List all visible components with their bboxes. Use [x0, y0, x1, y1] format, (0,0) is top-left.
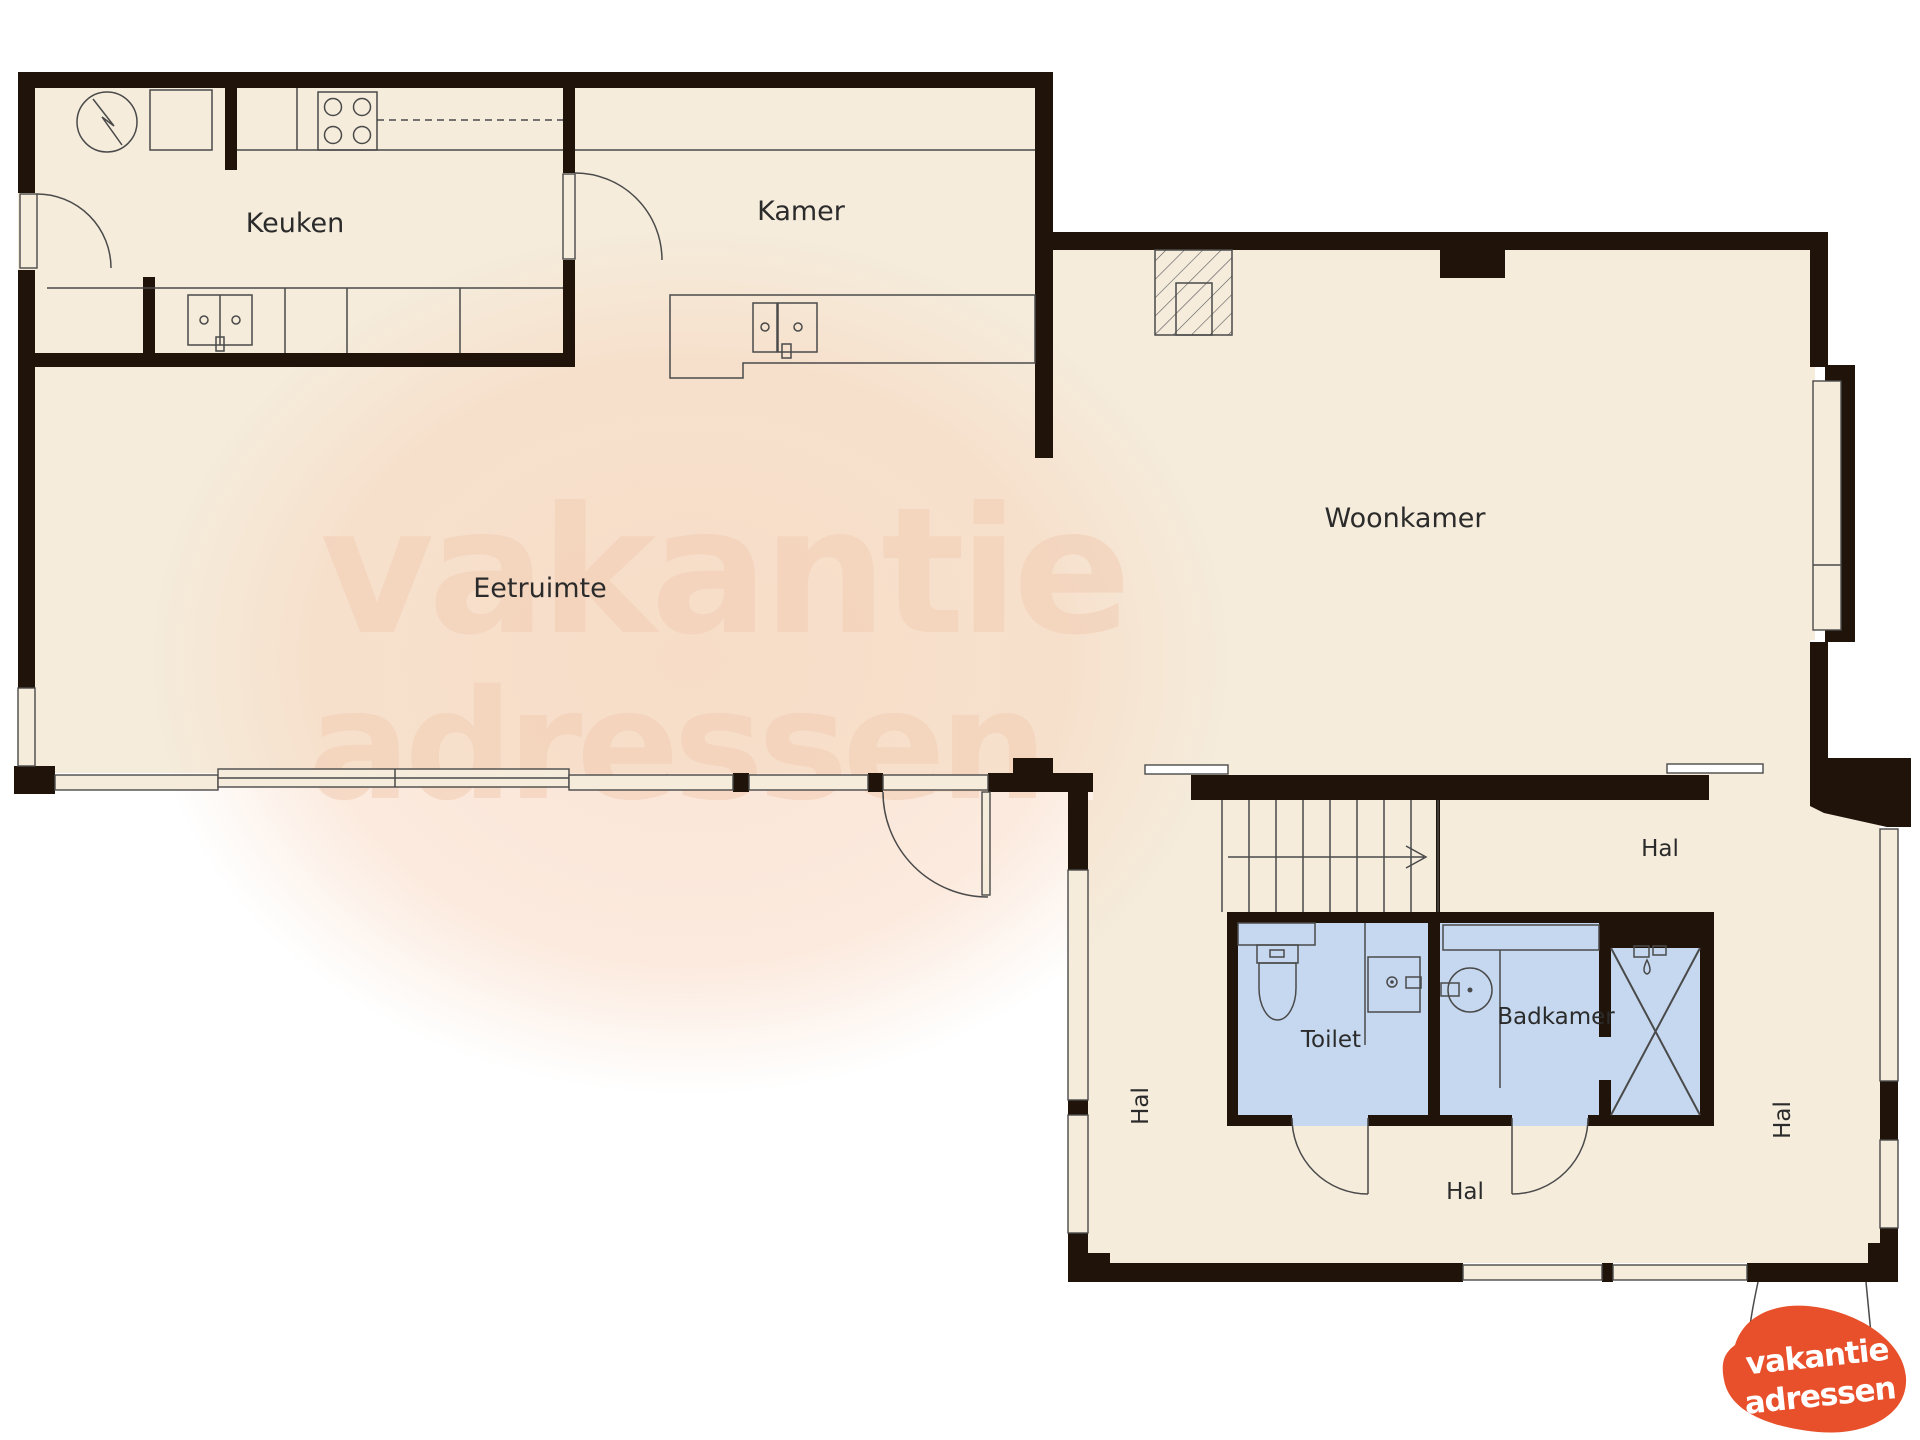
wall-hall-bottom-left [1110, 1263, 1463, 1282]
watermark-line1: vakantie [320, 471, 1126, 674]
wall-kamer-right [1035, 72, 1053, 458]
window-eetruimte-slider [218, 769, 569, 787]
wall-kitchen-stub [143, 277, 155, 357]
window-eetruimte-bottom-3 [749, 775, 868, 790]
wall-passage-stub [1013, 758, 1053, 777]
window-hall-bottom-1 [1463, 1265, 1602, 1280]
label-keuken: Keuken [246, 208, 344, 239]
wall-sanitary-right [1700, 912, 1714, 1126]
watermark-line2: adressen [308, 657, 1042, 834]
wall-top [18, 72, 1053, 88]
window-eetruimte-bottom-1 [55, 775, 218, 790]
wall-woonkamer-right-upper [1810, 250, 1828, 367]
wall-woonkamer-right-lower [1810, 642, 1828, 758]
wall-kitchen-bottom [18, 353, 575, 367]
window-woonkamer-bay [1813, 381, 1841, 630]
wall-sanitary-top [1227, 912, 1714, 923]
window-hall-right-1 [1880, 829, 1898, 1081]
wall-kitchen-divider-bottom [563, 260, 575, 367]
window-hall-left-1 [1068, 870, 1088, 1100]
window-eetruimte-bottom-2 [569, 775, 733, 790]
toilet-floor [1238, 923, 1428, 1115]
chimney-hatched [1155, 250, 1232, 335]
label-woonkamer: Woonkamer [1325, 503, 1487, 534]
wall-kitchen-divider-top [563, 88, 575, 173]
vendor-logo: vakantie adressen [1723, 1306, 1906, 1433]
wall-toilet-badkamer [1428, 923, 1440, 1115]
wall-hall-left-top [1068, 792, 1088, 870]
label-hal-bottom: Hal [1446, 1179, 1484, 1205]
floorplan-canvas: vakantie adressen [0, 0, 1920, 1440]
label-eetruimte: Eetruimte [473, 573, 606, 604]
wall-bay-outer [1841, 381, 1855, 630]
wall-woonkamer-top [1053, 232, 1828, 250]
wall-left-mid [18, 270, 35, 688]
label-toilet: Toilet [1300, 1027, 1361, 1053]
label-hal-right: Hal [1770, 1101, 1796, 1139]
label-kamer: Kamer [757, 196, 846, 227]
wall-woonkamer-pilaster [1440, 250, 1505, 278]
wall-sanitary-left [1227, 912, 1238, 1126]
window-interior-2 [1667, 764, 1763, 773]
wet-room-floors [1238, 923, 1700, 1126]
chimney [1155, 250, 1232, 335]
floorplan-drawing: vakantie adressen [0, 0, 1920, 1440]
window-hall-right-2 [1880, 1140, 1898, 1228]
window-eetruimte-left [18, 688, 35, 766]
wall-hall-top [1191, 775, 1709, 800]
wall-corner-bl [14, 766, 55, 794]
window-interior-1 [1145, 765, 1228, 774]
label-hal-left: Hal [1128, 1087, 1154, 1125]
window-hall-left-2 [1068, 1115, 1088, 1233]
label-hal-top: Hal [1641, 836, 1679, 862]
wall-left-upper [18, 72, 35, 193]
window-hall-bottom-2 [1613, 1265, 1747, 1280]
label-badkamer: Badkamer [1497, 1004, 1615, 1030]
wall-boiler-stub [225, 88, 237, 170]
